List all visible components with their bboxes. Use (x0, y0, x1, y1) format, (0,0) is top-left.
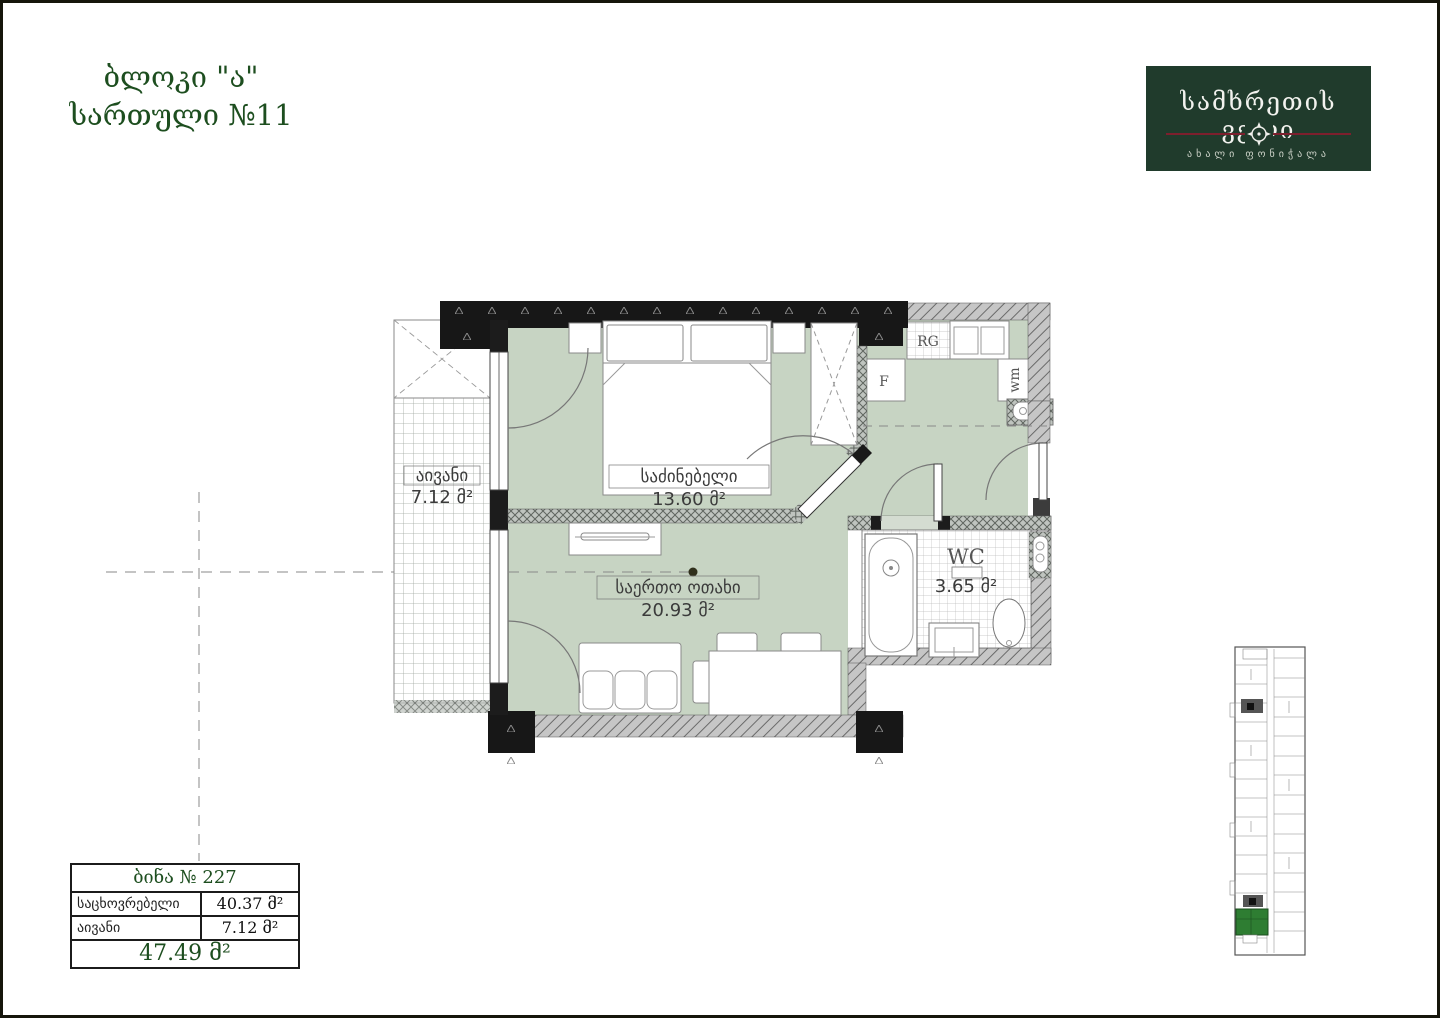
axis-lines (106, 492, 394, 861)
nightstand-left (569, 323, 601, 353)
bedroom-area: 13.60 მ² (652, 489, 726, 510)
sofa (579, 643, 681, 713)
bathtub (865, 534, 917, 656)
fridge-label: F (879, 374, 889, 390)
axis-dot (689, 568, 698, 577)
water-heater (1029, 532, 1051, 578)
washer-label: wm (1007, 367, 1023, 392)
wc-area: 3.65 მ² (935, 576, 997, 597)
living-area: 20.93 მ² (641, 600, 715, 621)
tv-stand (569, 523, 661, 555)
bedroom-name: საძინებელი (640, 467, 737, 487)
row-label: საცხოვრებელი (72, 893, 200, 915)
toilet (993, 599, 1025, 647)
balcony (394, 320, 490, 713)
row-label: აივანი (72, 917, 200, 939)
total-area: 47.49 მ² (72, 941, 298, 967)
balcony-area: 7.12 მ² (411, 487, 473, 508)
wc-name: WC (947, 545, 985, 569)
living-name: საერთო ოთახი (615, 578, 740, 598)
apartment-info-table: ბინა № 227 საცხოვრებელი 40.37 მ² აივანი … (70, 863, 300, 969)
row-value: 40.37 მ² (200, 893, 298, 915)
sink (929, 623, 979, 657)
table-row: აივანი 7.12 მ² (72, 917, 298, 941)
wardrobe (811, 323, 857, 445)
row-value: 7.12 მ² (200, 917, 298, 939)
nightstand-right (773, 323, 805, 353)
balcony-name: აივანი (416, 466, 468, 486)
building-key-plan (1230, 647, 1305, 955)
range-label: RG (917, 334, 939, 350)
floor-plan-sheet: ბლოკი "ა" სართული №11 სამხრეთის ველი ახა… (0, 0, 1440, 1018)
apartment-number: ბინა № 227 (72, 865, 298, 893)
table-row: საცხოვრებელი 40.37 მ² (72, 893, 298, 917)
